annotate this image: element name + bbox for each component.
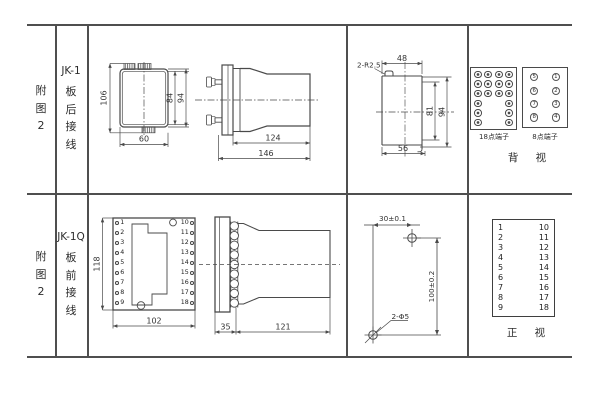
dim-81-label: 81	[426, 106, 435, 116]
terminal-circle	[495, 90, 503, 98]
panel-terminal: 11	[175, 230, 194, 236]
table-number: 8	[498, 294, 503, 302]
panel-terminal: 7	[115, 280, 131, 286]
table-number: 7	[498, 284, 503, 292]
terminal8-row: 84	[530, 113, 560, 121]
panel-terminal: 8	[115, 290, 131, 296]
terminal8-row: 51	[530, 73, 560, 81]
panel-terminal: 10	[175, 220, 194, 226]
dim-56-label: 56	[398, 144, 408, 153]
panel-terminal: 6	[115, 270, 131, 276]
front-view-label: 正 视	[486, 325, 566, 340]
terminal-circle	[505, 80, 513, 88]
frontview-table: 123456789 101112131415161718	[492, 219, 555, 317]
table-number: 2	[498, 234, 503, 242]
terminal-circle	[484, 80, 492, 88]
table-number: 9	[498, 304, 503, 312]
fig-label-row2: 附 图 2	[27, 195, 55, 354]
table-number: 15	[539, 274, 549, 282]
back-view-label: 背 视	[485, 150, 569, 165]
table-number: 16	[539, 284, 549, 292]
terminal-label: 10	[181, 220, 189, 226]
table-vline-4	[467, 24, 469, 358]
drill-vertical-dim: 100±0.2	[427, 271, 436, 303]
terminal18-row	[474, 109, 513, 117]
panel-terminal: 4	[115, 250, 131, 256]
terminal-circle	[484, 90, 492, 98]
panel-terminal: 3	[115, 240, 131, 246]
table-number: 11	[539, 234, 549, 242]
dim-94b-label: 94	[438, 107, 447, 117]
terminal-circle	[495, 80, 503, 88]
terminal-label: 12	[181, 240, 189, 246]
terminal-circle	[505, 71, 513, 79]
terminal-dot-icon	[115, 271, 119, 275]
terminal-number: 2	[552, 87, 560, 95]
wiring-label-jk1: 板 后 接 线	[66, 83, 77, 153]
cutout-radius-note: 2-R2.5	[357, 61, 381, 70]
dim-48-label: 48	[397, 54, 407, 63]
terminal-dot-icon	[190, 231, 194, 235]
table-number: 14	[539, 264, 549, 272]
model-cell-row2: JK-1Q 板 前 接 线	[55, 195, 87, 354]
terminal-block-18	[470, 67, 517, 130]
dim-124-label: 124	[265, 134, 280, 143]
frontview-col-right: 101112131415161718	[539, 224, 549, 312]
jk1-cutout-drawing: 2-R2.5 48 81 94 56	[346, 24, 467, 193]
terminal-dot-icon	[115, 251, 119, 255]
terminal-circle	[474, 100, 482, 108]
terminal-circle	[505, 119, 513, 127]
table-number: 12	[539, 244, 549, 252]
terminal18-row	[474, 100, 513, 108]
terminal-dot-icon	[115, 281, 119, 285]
drill-holes-note: 2-Φ5	[392, 312, 410, 321]
table-number: 6	[498, 274, 503, 282]
terminal18-row	[474, 119, 513, 127]
dim-146-label: 146	[258, 149, 273, 158]
terminal-number: 4	[552, 113, 560, 121]
panel-terminal: 12	[175, 240, 194, 246]
terminal-circle	[474, 71, 482, 79]
panel-terminal: 14	[175, 260, 194, 266]
jk1q-terminals-right: 101112131415161718	[175, 220, 194, 306]
dim-106-label: 106	[100, 90, 109, 105]
table-number: 4	[498, 254, 503, 262]
table-border-bottom	[27, 356, 572, 358]
terminal-label: 7	[120, 280, 124, 286]
panel-terminal: 13	[175, 250, 194, 256]
dim-118-label: 118	[93, 256, 102, 271]
terminal-dot-icon	[115, 291, 119, 295]
table-number: 5	[498, 264, 503, 272]
model-name-jk1q: JK-1Q	[57, 229, 85, 246]
terminal-label: 8	[120, 290, 124, 296]
table-number: 3	[498, 244, 503, 252]
panel-terminal: 5	[115, 260, 131, 266]
dim-121-label: 121	[275, 323, 290, 332]
dim-102-label: 102	[146, 317, 161, 326]
datasheet-page: 附 图 2 JK-1 板 后 接 线 附 图 2 JK-1Q 板 前 接 线	[0, 0, 600, 400]
wiring-label-jk1q: 板 前 接 线	[66, 249, 77, 319]
terminal-dot-icon	[190, 281, 194, 285]
model-name-jk1: JK-1	[61, 63, 80, 80]
terminal-label: 6	[120, 270, 124, 276]
jk1-outline-drawing: 106 84 94 60 124 146	[87, 24, 346, 193]
terminal-label: 4	[120, 250, 124, 256]
terminal-dot-icon	[190, 271, 194, 275]
jk1q-terminals-left: 123456789	[115, 220, 131, 306]
terminal-number: 3	[552, 100, 560, 108]
panel-terminal: 1	[115, 220, 131, 226]
terminal-dot-icon	[190, 251, 194, 255]
table-number: 13	[539, 254, 549, 262]
terminal-number: 7	[530, 100, 538, 108]
table-number: 1	[498, 224, 503, 232]
drilling-pattern-drawing: 30±0.1 100±0.2 2-Φ5	[346, 193, 467, 356]
terminal-dot-icon	[190, 261, 194, 265]
panel-terminal: 16	[175, 280, 194, 286]
terminal-dot-icon	[190, 241, 194, 245]
panel-terminal: 9	[115, 300, 131, 306]
dim-84-label: 84	[166, 93, 175, 103]
terminal-label: 18	[181, 300, 189, 306]
terminal-circle	[505, 100, 513, 108]
panel-terminal: 15	[175, 270, 194, 276]
terminal-label: 11	[181, 230, 189, 236]
terminal-circle	[495, 71, 503, 79]
terminal-circle	[474, 80, 482, 88]
drill-horizontal-dim: 30±0.1	[379, 214, 406, 223]
panel-terminal: 2	[115, 230, 131, 236]
terminal-label: 16	[181, 280, 189, 286]
terminal-number: 6	[530, 87, 538, 95]
terminal-label: 2	[120, 230, 124, 236]
terminal-circle	[474, 109, 482, 117]
terminal-dot-icon	[115, 231, 119, 235]
terminal-dot-icon	[115, 301, 119, 305]
terminal-dot-icon	[190, 221, 194, 225]
terminal-circle	[484, 71, 492, 79]
terminal-number: 1	[552, 73, 560, 81]
terminal-circle	[505, 90, 513, 98]
dim-60-label: 60	[139, 135, 149, 144]
terminal8-row: 73	[530, 100, 560, 108]
terminal-circle	[474, 119, 482, 127]
terminal8-row: 62	[530, 87, 560, 95]
terminal18-row	[474, 90, 513, 98]
terminal8-label: 8点端子	[513, 132, 577, 142]
fig-label-row1: 附 图 2	[27, 26, 55, 191]
terminal-number: 5	[530, 73, 538, 81]
terminal-dot-icon	[190, 301, 194, 305]
terminal-dot-icon	[115, 221, 119, 225]
terminal-label: 17	[181, 290, 189, 296]
terminal-label: 15	[181, 270, 189, 276]
terminal-dot-icon	[115, 261, 119, 265]
terminal-circle	[474, 90, 482, 98]
terminal-block-8: 51627384	[522, 67, 568, 128]
terminal18-row	[474, 80, 513, 88]
dim-35-label: 35	[220, 323, 230, 332]
terminal-label: 1	[120, 220, 124, 226]
table-number: 18	[539, 304, 549, 312]
terminal-dot-icon	[190, 291, 194, 295]
terminal-number: 8	[530, 113, 538, 121]
frontview-col-left: 123456789	[498, 224, 503, 312]
terminal-dot-icon	[115, 241, 119, 245]
model-cell-row1: JK-1 板 后 接 线	[55, 26, 87, 191]
table-number: 10	[539, 224, 549, 232]
terminal-label: 5	[120, 260, 124, 266]
terminal18-row	[474, 71, 513, 79]
panel-terminal: 18	[175, 300, 194, 306]
terminal-circle	[505, 109, 513, 117]
terminal-label: 14	[181, 260, 189, 266]
table-number: 17	[539, 294, 549, 302]
dim-94-label: 94	[177, 93, 186, 103]
terminal-label: 3	[120, 240, 124, 246]
terminal-label: 13	[181, 250, 189, 256]
panel-terminal: 17	[175, 290, 194, 296]
terminal-label: 9	[120, 300, 124, 306]
